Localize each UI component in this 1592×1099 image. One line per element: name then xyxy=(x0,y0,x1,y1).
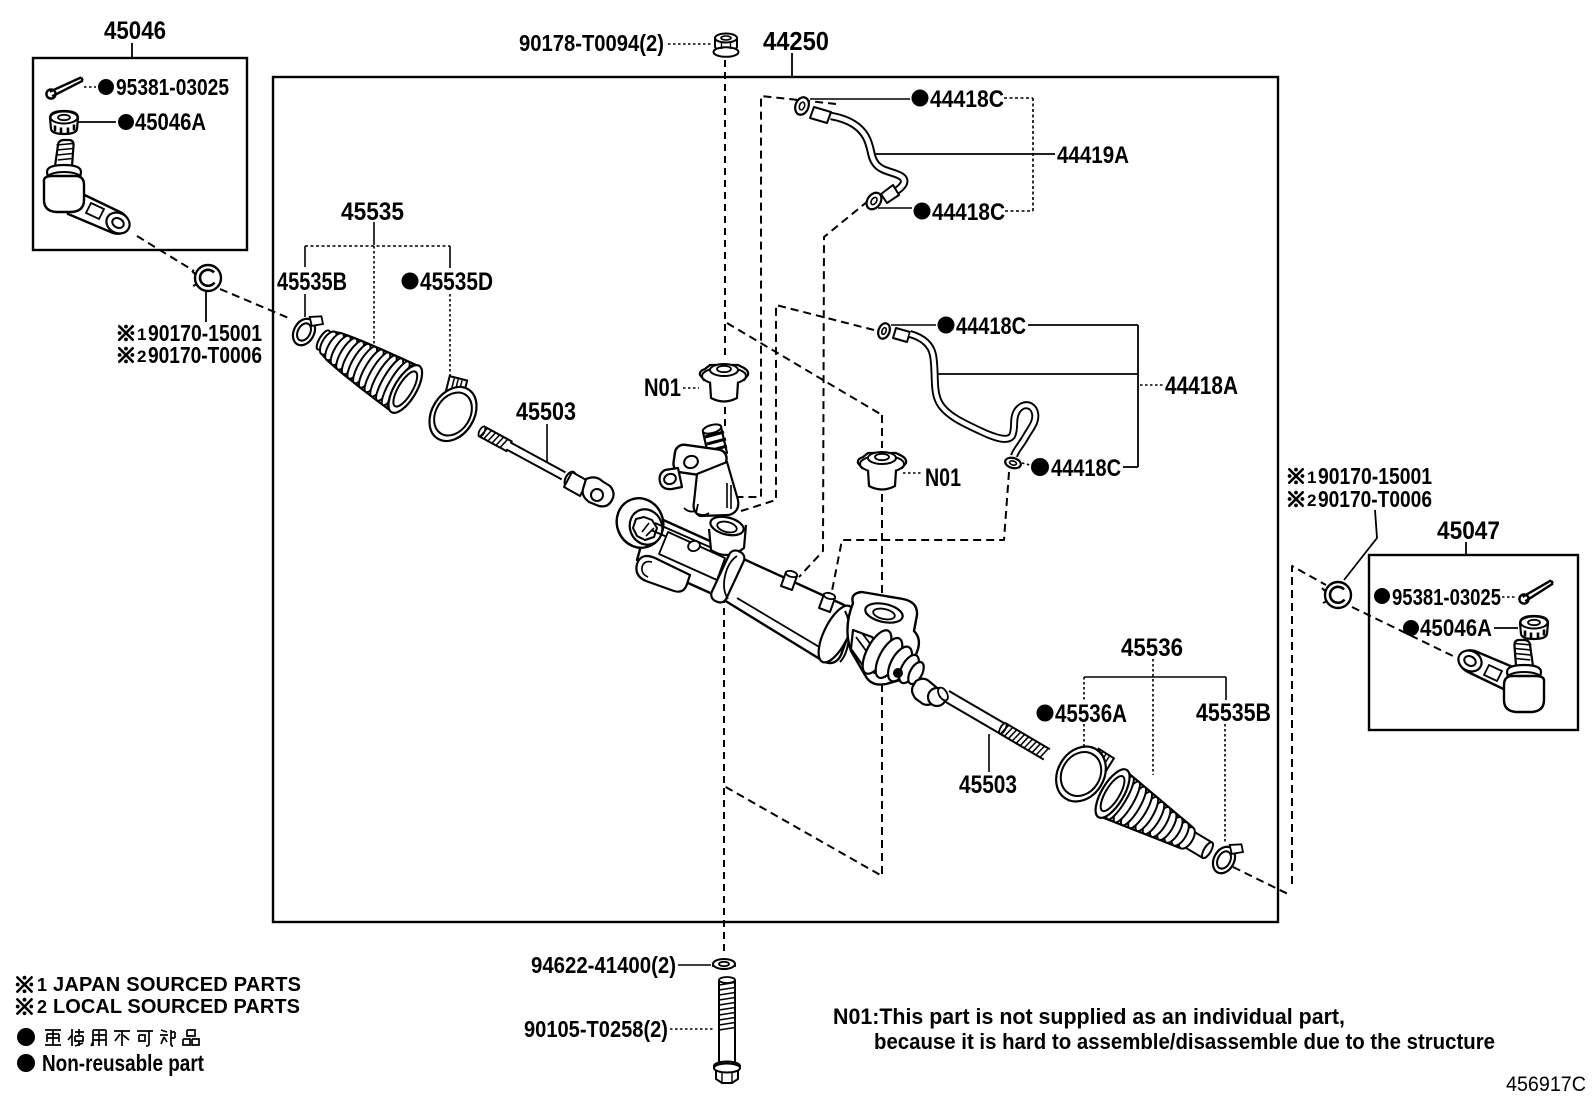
svg-text:45535B: 45535B xyxy=(277,268,347,296)
svg-text:94622-41400(2): 94622-41400(2) xyxy=(531,952,676,978)
svg-text:N01: N01 xyxy=(925,464,961,492)
svg-text:44419A: 44419A xyxy=(1057,142,1129,169)
svg-text:44418C: 44418C xyxy=(932,199,1005,226)
svg-text:90105-T0258(2): 90105-T0258(2) xyxy=(524,1016,668,1042)
svg-text:45535B: 45535B xyxy=(1196,699,1271,727)
svg-text:456917C: 456917C xyxy=(1506,1073,1586,1096)
svg-text:90178-T0094(2): 90178-T0094(2) xyxy=(519,30,664,56)
svg-text:45046A: 45046A xyxy=(135,109,206,136)
svg-text:44418C: 44418C xyxy=(930,86,1004,113)
svg-text:90170-T0006: 90170-T0006 xyxy=(148,342,262,368)
svg-text:N01:This part is not supplied: N01:This part is not supplied as an indi… xyxy=(833,1004,1345,1029)
svg-text:Non-reusable part: Non-reusable part xyxy=(42,1050,204,1076)
svg-text:45535: 45535 xyxy=(341,198,404,226)
svg-text:2: 2 xyxy=(137,347,146,366)
svg-text:45503: 45503 xyxy=(959,771,1017,799)
svg-text:44418C: 44418C xyxy=(1051,455,1121,482)
svg-text:1: 1 xyxy=(37,975,47,995)
svg-text:45535D: 45535D xyxy=(420,268,493,296)
svg-text:45536: 45536 xyxy=(1121,634,1183,662)
svg-text:45046A: 45046A xyxy=(1420,615,1492,642)
svg-text:44418C: 44418C xyxy=(956,313,1026,340)
svg-text:2: 2 xyxy=(1307,491,1316,510)
svg-text:44418A: 44418A xyxy=(1165,372,1238,400)
svg-text:N01: N01 xyxy=(644,374,681,402)
svg-text:45046: 45046 xyxy=(104,17,166,45)
svg-text:95381-03025: 95381-03025 xyxy=(116,74,229,100)
svg-text:45047: 45047 xyxy=(1437,517,1500,545)
svg-text:44250: 44250 xyxy=(763,26,829,56)
svg-text:JAPAN SOURCED PARTS: JAPAN SOURCED PARTS xyxy=(53,974,301,996)
svg-text:45536A: 45536A xyxy=(1055,700,1127,728)
svg-text:1: 1 xyxy=(137,325,146,344)
svg-text:because it is hard to assemble: because it is hard to assemble/disassemb… xyxy=(874,1029,1495,1054)
svg-text:90170-T0006: 90170-T0006 xyxy=(1318,486,1432,512)
svg-text:2: 2 xyxy=(37,997,47,1017)
svg-text:95381-03025: 95381-03025 xyxy=(1392,584,1501,610)
svg-text:LOCAL SOURCED PARTS: LOCAL SOURCED PARTS xyxy=(53,996,300,1018)
svg-text:45503: 45503 xyxy=(516,398,576,426)
svg-text:1: 1 xyxy=(1307,468,1316,487)
